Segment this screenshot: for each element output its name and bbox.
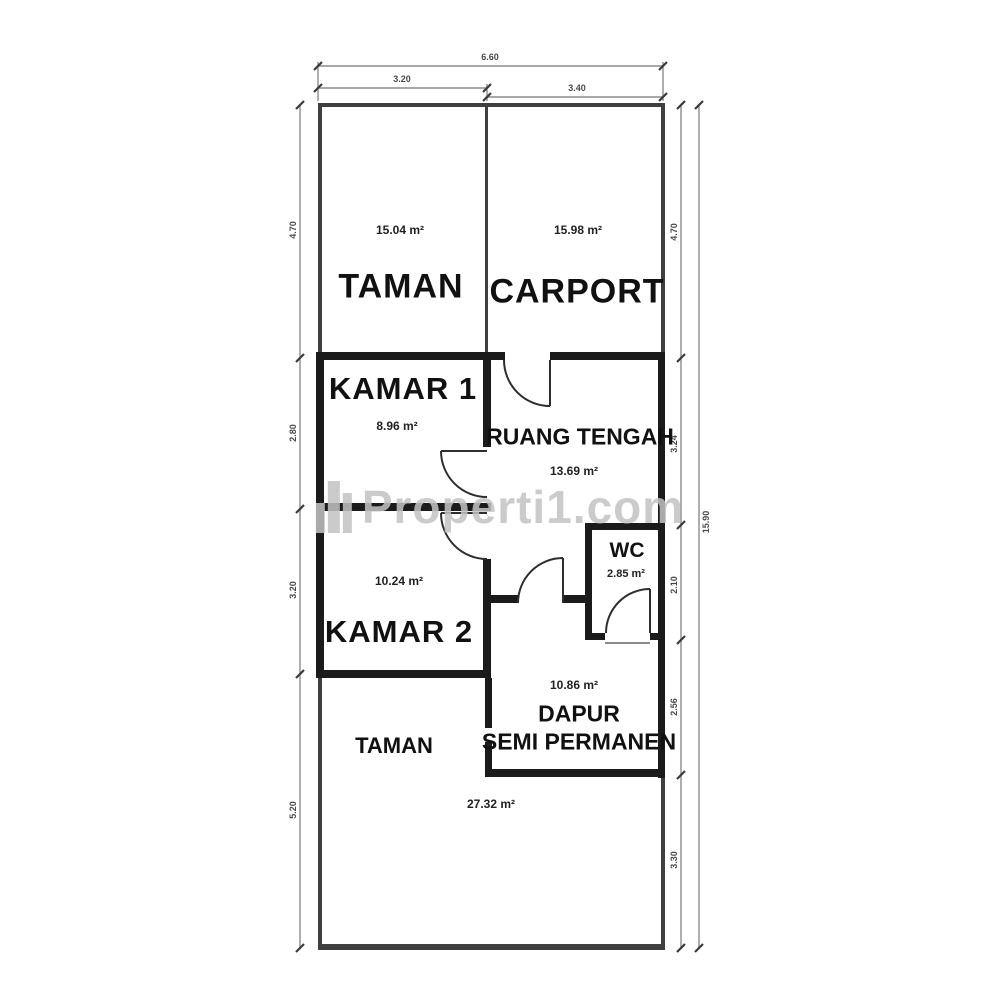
- carport-area: 15.98 m²: [554, 223, 602, 237]
- wall: [585, 633, 605, 640]
- dim-left-4: 5.20: [288, 801, 298, 819]
- wall: [491, 595, 518, 603]
- dim-right-4: 2.56: [669, 698, 679, 716]
- wall: [661, 778, 665, 950]
- kamar2-label: KAMAR 2: [325, 614, 473, 650]
- wall: [658, 352, 665, 778]
- dim-right-3: 2.10: [669, 576, 679, 594]
- watermark: Properti1.com: [316, 480, 684, 534]
- wall: [485, 678, 492, 728]
- door-arc: [606, 589, 650, 633]
- kamar2-area: 10.24 m²: [375, 574, 423, 588]
- wc-label: WC: [610, 539, 645, 563]
- wall: [485, 769, 665, 777]
- kamar1-area: 8.96 m²: [376, 419, 417, 433]
- wall: [485, 107, 488, 355]
- door-arc: [518, 558, 563, 603]
- wall: [318, 944, 665, 950]
- threshold-line: [605, 642, 650, 644]
- wall: [661, 103, 665, 355]
- dim-left-2: 2.80: [288, 424, 298, 442]
- wall: [318, 352, 505, 360]
- wall: [585, 523, 592, 640]
- taman-bottom-area: 27.32 m²: [467, 797, 515, 811]
- dim-right-1: 4.70: [669, 223, 679, 241]
- dim-left-3: 3.20: [288, 581, 298, 599]
- dim-right-total: 15.90: [701, 511, 711, 534]
- dim-right-5: 3.30: [669, 851, 679, 869]
- carport-label: CARPORT: [489, 273, 664, 312]
- dapur-label: DAPUR: [538, 701, 620, 728]
- floor-plan: 6.60 3.20 3.40 4.70 2.80 3.20 5.20 4.70 …: [0, 0, 1000, 1000]
- door-arc: [504, 360, 550, 406]
- wall: [316, 670, 491, 678]
- ruang-tengah-area: 13.69 m²: [550, 464, 598, 478]
- wall: [318, 675, 322, 950]
- taman-top-label: TAMAN: [338, 268, 463, 307]
- watermark-text: Properti1.com: [362, 480, 684, 534]
- building-skyline-icon: [316, 481, 352, 533]
- kamar1-label: KAMAR 1: [329, 371, 477, 407]
- wall: [650, 633, 665, 640]
- wall: [318, 103, 322, 355]
- taman-bottom-label: TAMAN: [355, 733, 433, 759]
- taman-top-area: 15.04 m²: [376, 223, 424, 237]
- dapur-area: 10.86 m²: [550, 678, 598, 692]
- wall: [550, 352, 665, 360]
- dim-top-total: 6.60: [481, 52, 499, 62]
- dim-top-right: 3.40: [568, 83, 586, 93]
- dim-top-left: 3.20: [393, 74, 411, 84]
- dapur-label-2: SEMI PERMANEN: [482, 729, 676, 756]
- dim-left-1: 4.70: [288, 221, 298, 239]
- wall: [483, 559, 491, 678]
- wc-area: 2.85 m²: [607, 568, 645, 580]
- ruang-tengah-label: RUANG TENGAH: [486, 424, 674, 451]
- wall: [318, 103, 665, 107]
